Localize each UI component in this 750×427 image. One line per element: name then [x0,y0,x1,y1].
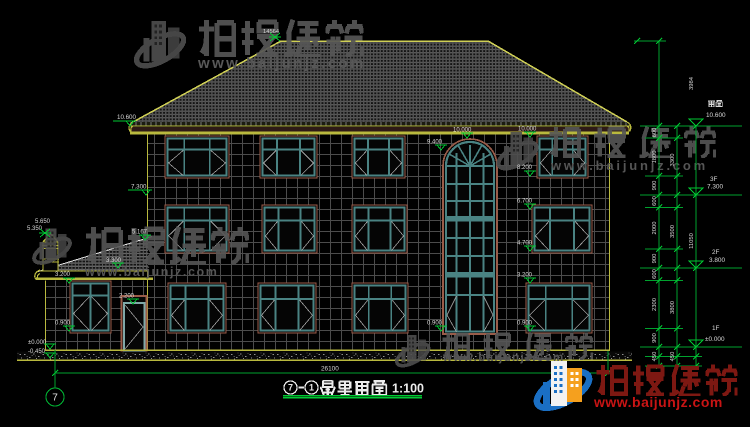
svg-text:www.baijunjz.com: www.baijunjz.com [197,55,366,72]
svg-text:10.600: 10.600 [117,114,136,121]
svg-text:2000: 2000 [652,222,658,235]
svg-text:10.600: 10.600 [706,112,726,119]
svg-text:600: 600 [652,196,658,206]
svg-text:±0.000: ±0.000 [28,340,47,346]
svg-text:3500: 3500 [670,225,676,238]
svg-text:www.baijunjz.com: www.baijunjz.com [550,158,708,173]
svg-text:1: 1 [309,383,314,393]
svg-text:26100: 26100 [321,366,339,373]
svg-text:3F: 3F [710,176,718,183]
svg-text:7: 7 [52,393,58,404]
svg-text:7: 7 [288,383,293,393]
svg-text:3.200: 3.200 [55,272,71,278]
svg-text:7.300: 7.300 [707,184,723,191]
svg-text:2F: 2F [712,249,720,256]
svg-text:11050: 11050 [689,233,695,249]
svg-text:5.650: 5.650 [35,219,51,225]
svg-text:900: 900 [652,181,658,191]
svg-text:±0.000: ±0.000 [705,336,725,343]
svg-text:1800: 1800 [652,151,658,164]
svg-text:3.800: 3.800 [709,257,725,264]
svg-text:www.baijunjz.com: www.baijunjz.com [442,352,565,364]
svg-text:600: 600 [652,269,658,279]
svg-text:450: 450 [670,352,676,362]
svg-text:7.300: 7.300 [131,184,147,191]
svg-text:900: 900 [652,333,658,343]
svg-text:www.baijunjz.com: www.baijunjz.com [593,394,723,410]
svg-text:-0.450: -0.450 [28,349,46,355]
svg-text:900: 900 [652,254,658,264]
svg-text:www.baijunjz.com: www.baijunjz.com [84,265,218,279]
svg-text:1:100: 1:100 [392,382,424,396]
svg-text:1F: 1F [712,325,720,332]
svg-text:600: 600 [652,128,658,138]
svg-text:8.200: 8.200 [517,165,533,171]
svg-text:3300: 3300 [670,154,676,167]
svg-text:3984: 3984 [689,76,695,90]
svg-text:3800: 3800 [670,301,676,314]
svg-text:2300: 2300 [652,298,658,311]
svg-text:450: 450 [652,352,658,362]
